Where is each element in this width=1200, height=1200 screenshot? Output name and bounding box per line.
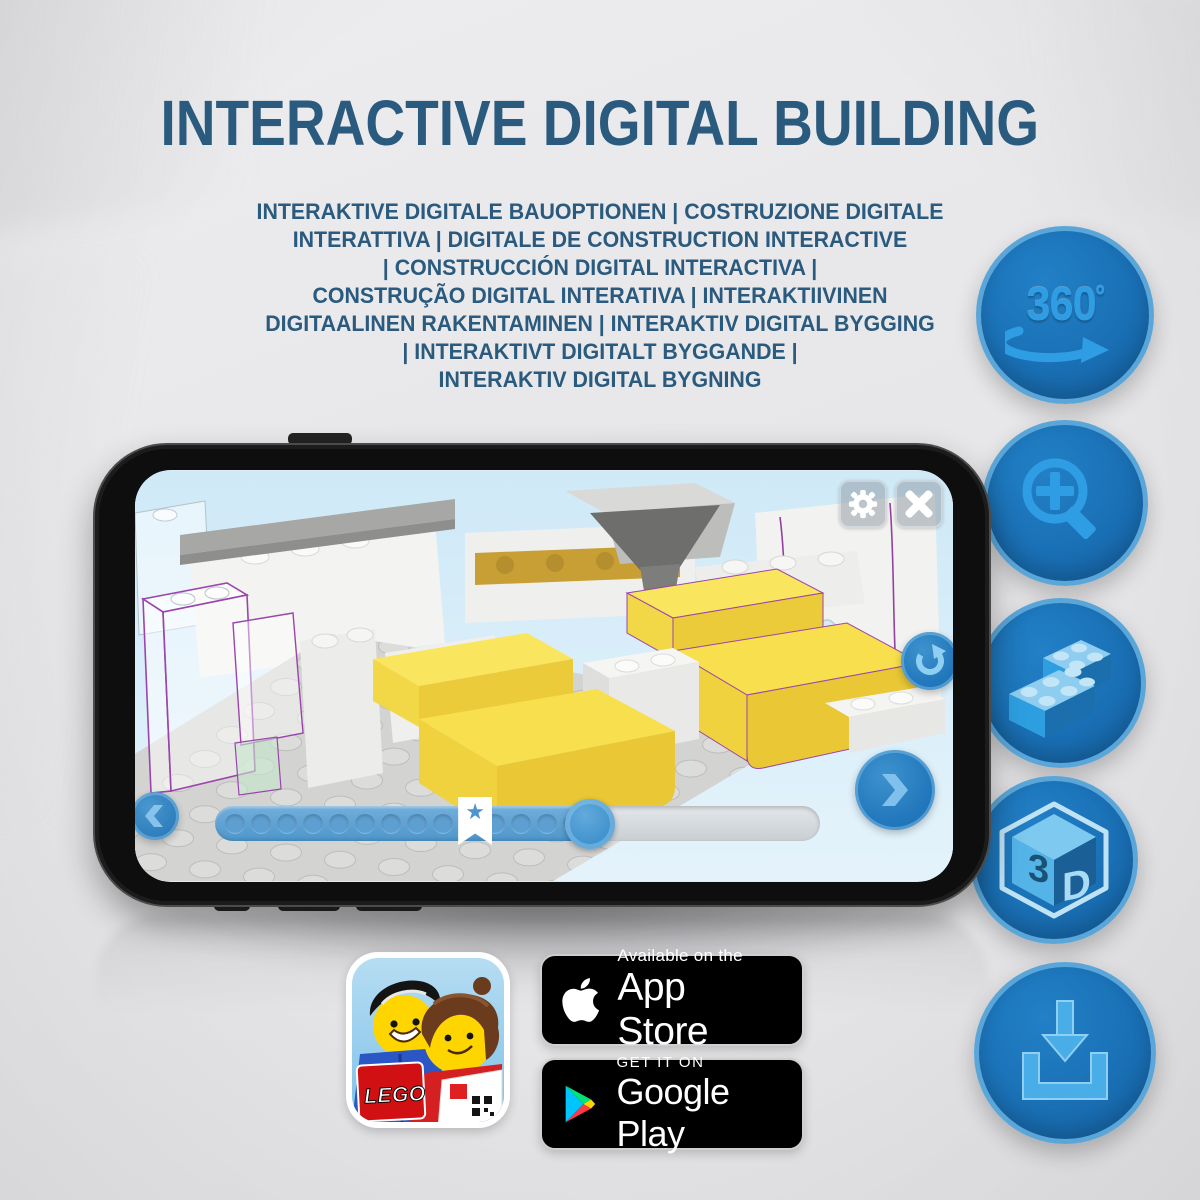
app-store-badge[interactable]: Available on the App Store [540,954,804,1046]
app-store-name: App Store [617,966,784,1054]
progress-dot [303,814,323,834]
magnifier-plus-icon [1010,448,1120,558]
progress-knob[interactable] [565,799,615,849]
progress-dot [511,814,531,834]
lego-logo-text: LEGO [364,1082,427,1108]
feature-badge-360: 360º [976,226,1154,404]
google-play-tagline: GET IT ON [616,1054,784,1071]
3d-left-glyph: 3 [1028,846,1049,893]
lego-app-icon-art: LEGO [352,958,504,1122]
page-title: INTERACTIVE DIGITAL BUILDING [161,86,1040,160]
progress-dot [251,814,271,834]
build-progress-bar[interactable]: ★ [215,806,820,841]
rotate-view-button[interactable] [901,632,953,690]
phone-mockup: ★ [93,443,991,907]
360-label: 360º [1026,276,1103,331]
feature-badge-3d: 3 D [970,776,1138,944]
3d-right-glyph: D [1062,859,1091,911]
google-play-icon [560,1079,600,1129]
progress-dot [355,814,375,834]
feature-badge-zoom [982,420,1148,586]
progress-dot [537,814,557,834]
chevron-left-icon [143,803,167,829]
progress-dot [433,814,453,834]
app-store-tagline: Available on the [617,946,784,966]
feature-badge-bricks [976,598,1146,768]
google-play-name: Google Play [616,1071,784,1155]
rotate-icon [913,644,947,678]
minifigures-illustration: LEGO [352,958,504,1122]
poster-canvas: INTERACTIVE DIGITAL BUILDING INTERAKTIVE… [0,0,1200,1200]
close-icon [905,490,933,518]
progress-dot [329,814,349,834]
progress-dot [381,814,401,834]
chevron-right-icon [878,771,912,809]
progress-fill [215,806,590,841]
3d-cube-icon: 3 D [994,798,1114,922]
close-button[interactable] [895,480,943,528]
lego-bricks-icon [999,624,1123,742]
feature-badge-download [974,962,1156,1144]
gear-icon [848,489,878,519]
settings-button[interactable] [839,480,887,528]
apple-icon [560,975,601,1025]
progress-dot [407,814,427,834]
lego-app-icon[interactable]: LEGO [346,952,510,1128]
multilanguage-subtitle: INTERAKTIVE DIGITALE BAUOPTIONEN | COSTR… [115,198,1085,394]
google-play-badge[interactable]: GET IT ON Google Play [540,1058,804,1150]
progress-dot [277,814,297,834]
app-screen: ★ [135,470,953,882]
progress-dot [225,814,245,834]
next-step-button[interactable] [855,750,935,830]
download-icon [1005,995,1125,1111]
